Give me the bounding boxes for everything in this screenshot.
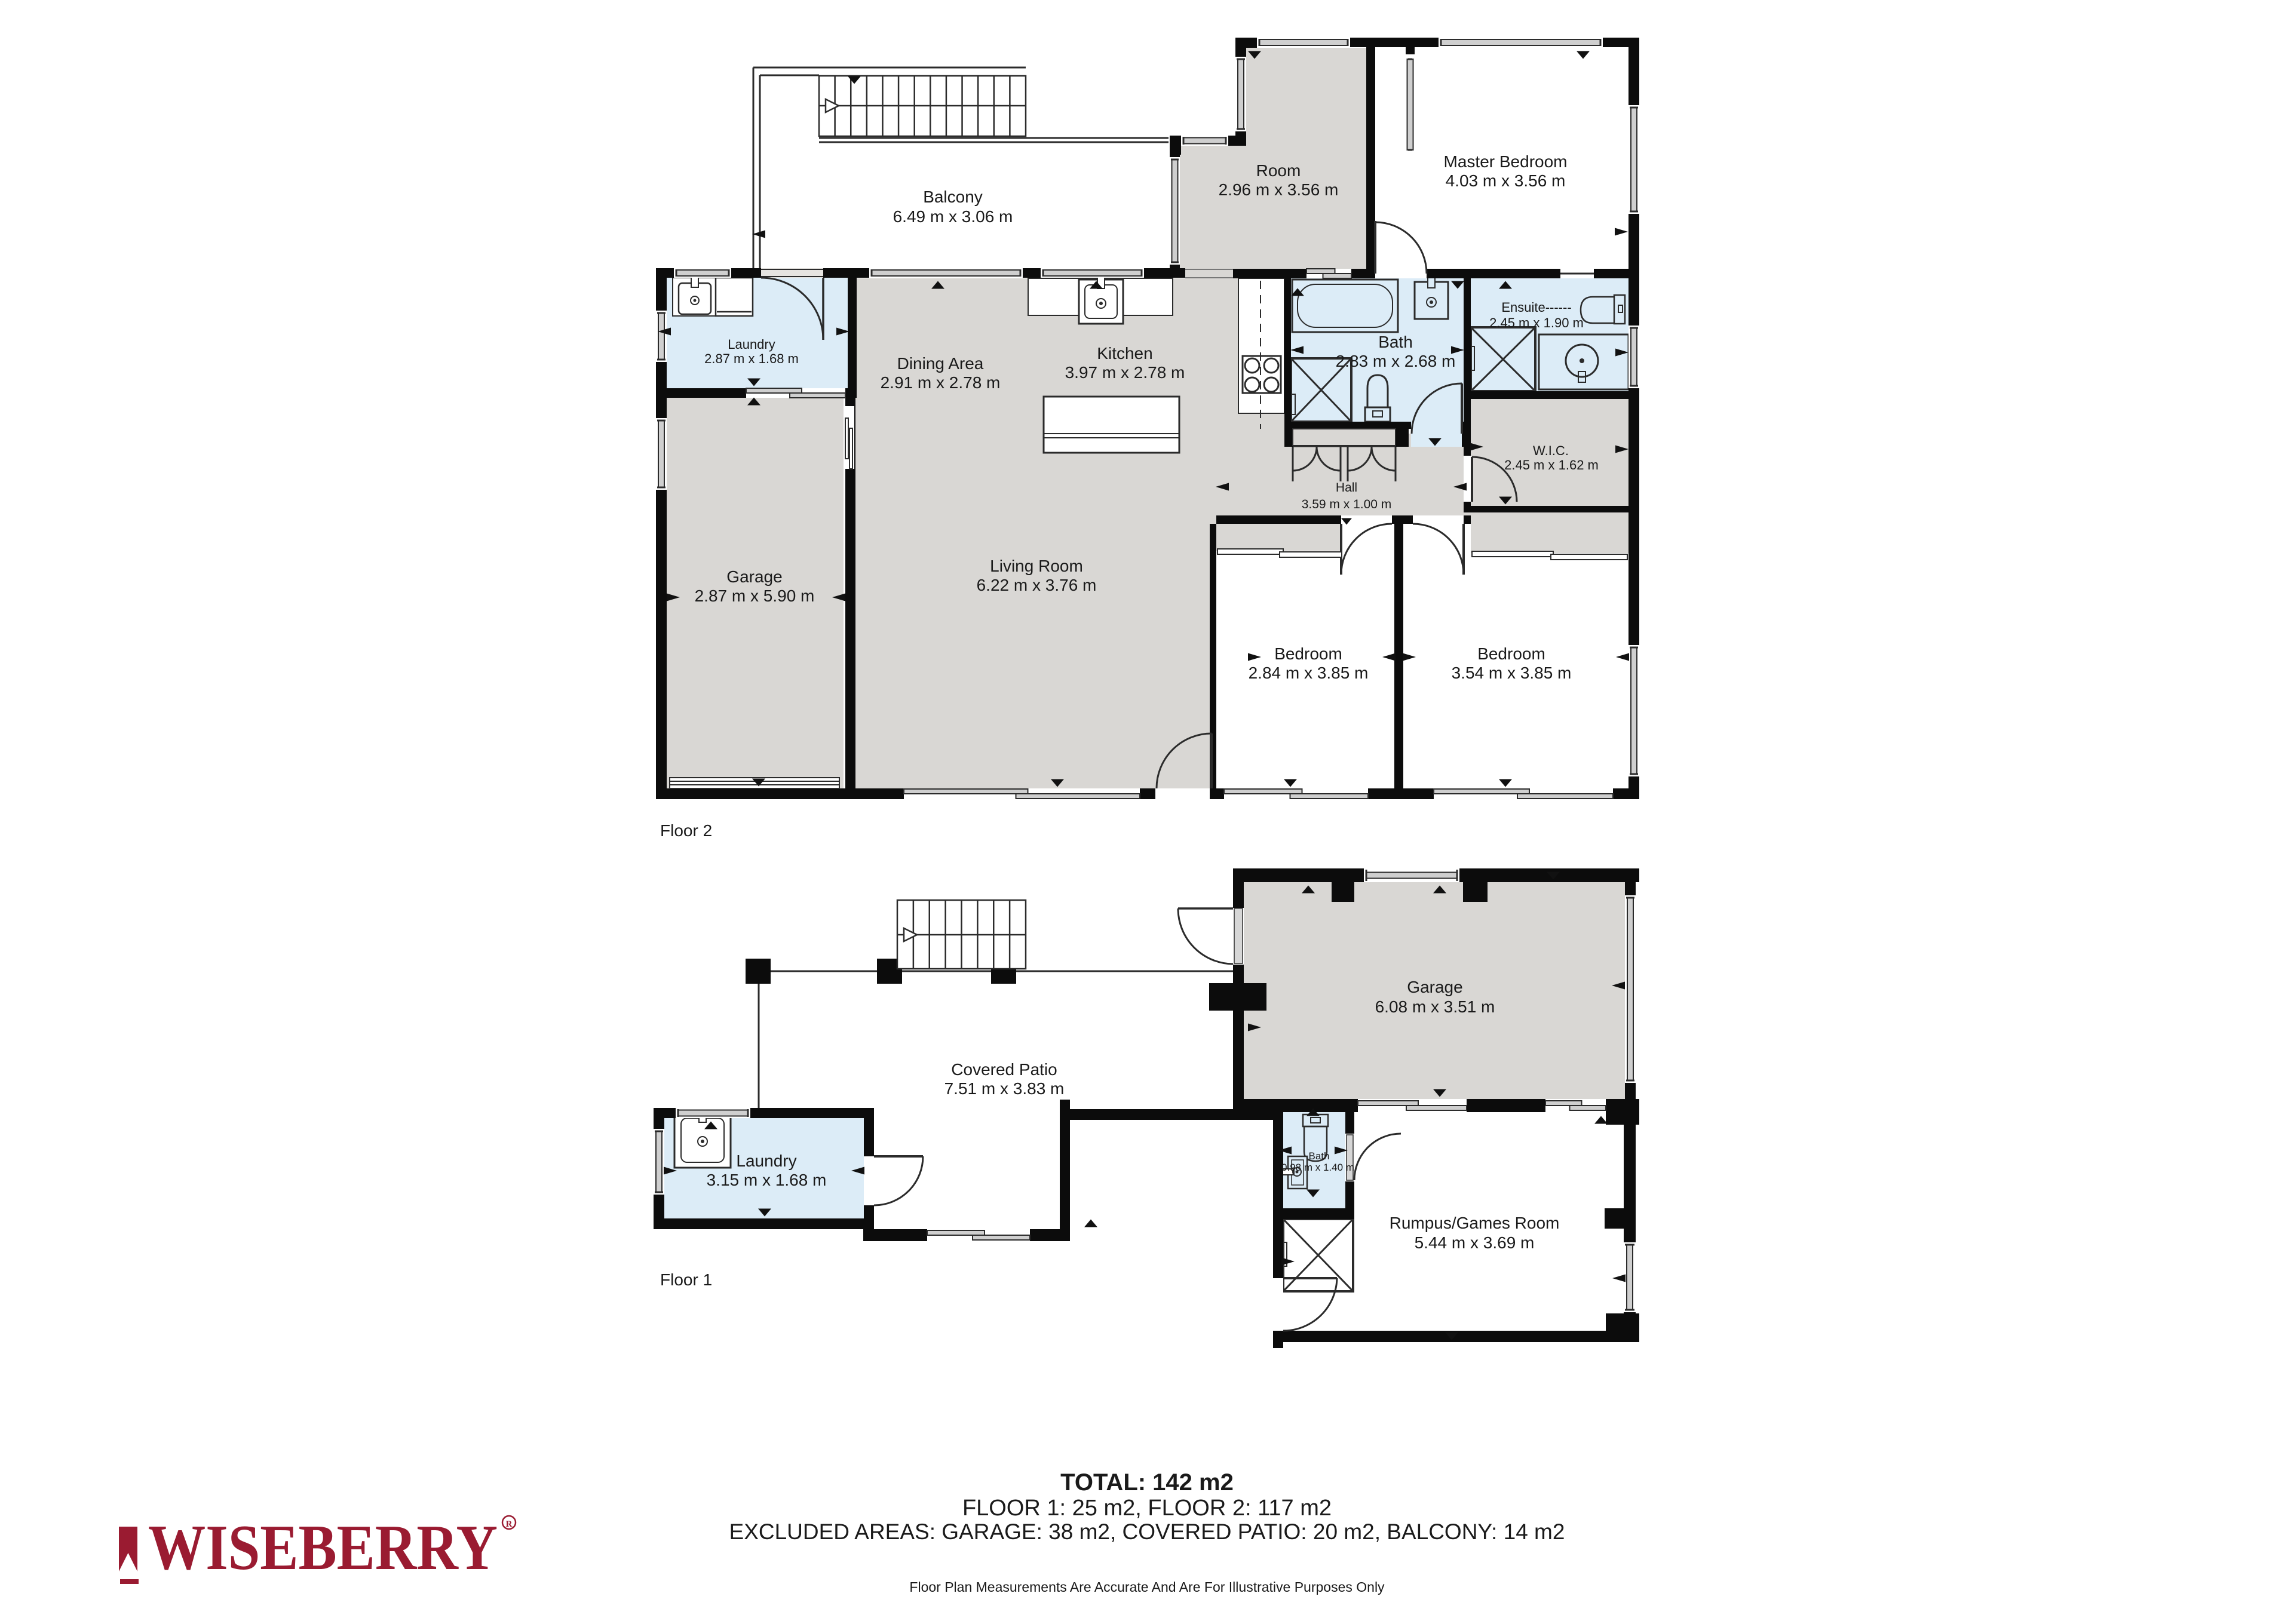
- svg-text:TOTAL: 142 m2: TOTAL: 142 m2: [1060, 1469, 1234, 1496]
- svg-text:Garage: Garage: [1407, 978, 1462, 996]
- svg-text:Laundry: Laundry: [736, 1152, 796, 1170]
- svg-text:Hall: Hall: [1336, 481, 1357, 495]
- svg-text:0.98 m x 1.40 m: 0.98 m x 1.40 m: [1281, 1162, 1354, 1173]
- svg-text:Bedroom: Bedroom: [1477, 644, 1545, 663]
- svg-text:Room: Room: [1256, 161, 1301, 180]
- svg-text:EXCLUDED AREAS: GARAGE: 38 m2,: EXCLUDED AREAS: GARAGE: 38 m2, COVERED P…: [729, 1519, 1565, 1544]
- svg-text:Rumpus/Games Room: Rumpus/Games Room: [1390, 1214, 1560, 1232]
- svg-text:2.45 m x 1.62 m: 2.45 m x 1.62 m: [1504, 458, 1599, 472]
- svg-text:2.83 m x 2.68 m: 2.83 m x 2.68 m: [1336, 352, 1456, 370]
- svg-text:4.03 m x 3.56 m: 4.03 m x 3.56 m: [1446, 171, 1566, 190]
- svg-text:Bath: Bath: [1378, 333, 1413, 351]
- svg-text:Bath: Bath: [1309, 1150, 1330, 1162]
- svg-text:3.97 m x 2.78 m: 3.97 m x 2.78 m: [1065, 363, 1185, 382]
- svg-text:2.87 m x 1.68 m: 2.87 m x 1.68 m: [704, 351, 799, 366]
- svg-text:Laundry: Laundry: [728, 337, 775, 352]
- svg-text:6.22 m x 3.76 m: 6.22 m x 3.76 m: [977, 576, 1097, 594]
- svg-text:Master Bedroom: Master Bedroom: [1444, 152, 1568, 171]
- svg-text:Bedroom: Bedroom: [1274, 644, 1342, 663]
- svg-text:2.96 m x 3.56 m: 2.96 m x 3.56 m: [1219, 180, 1339, 199]
- svg-text:2.45 m x 1.90 m: 2.45 m x 1.90 m: [1489, 315, 1584, 330]
- svg-text:6.49 m x 3.06 m: 6.49 m x 3.06 m: [893, 207, 1013, 226]
- svg-text:W.I.C.: W.I.C.: [1533, 443, 1569, 458]
- svg-text:7.51 m x 3.83 m: 7.51 m x 3.83 m: [944, 1079, 1065, 1098]
- svg-text:Kitchen: Kitchen: [1097, 344, 1152, 363]
- svg-text:Floor 2: Floor 2: [660, 821, 712, 840]
- svg-text:2.87 m x 5.90 m: 2.87 m x 5.90 m: [695, 587, 815, 605]
- svg-text:Dining Area: Dining Area: [897, 354, 984, 373]
- svg-text:Floor Plan Measurements Are Ac: Floor Plan Measurements Are Accurate And…: [909, 1579, 1385, 1595]
- svg-text:WISEBERRY: WISEBERRY: [148, 1512, 498, 1583]
- svg-text:3.54 m x 3.85 m: 3.54 m x 3.85 m: [1452, 664, 1572, 682]
- svg-text:Floor 1: Floor 1: [660, 1270, 712, 1289]
- svg-text:2.91 m x 2.78 m: 2.91 m x 2.78 m: [881, 373, 1001, 392]
- svg-text:FLOOR 1: 25 m2, FLOOR 2: 117 m: FLOOR 1: 25 m2, FLOOR 2: 117 m2: [962, 1496, 1332, 1521]
- svg-text:Garage: Garage: [726, 567, 782, 586]
- svg-text:3.59 m x 1.00 m: 3.59 m x 1.00 m: [1302, 498, 1392, 511]
- svg-text:6.08 m x 3.51 m: 6.08 m x 3.51 m: [1375, 997, 1495, 1016]
- svg-text:5.44 m x 3.69 m: 5.44 m x 3.69 m: [1415, 1233, 1535, 1252]
- svg-text:Covered Patio: Covered Patio: [951, 1060, 1057, 1079]
- svg-text:Living Room: Living Room: [990, 557, 1083, 575]
- svg-text:2.84 m x 3.85 m: 2.84 m x 3.85 m: [1249, 664, 1369, 682]
- svg-text:Ensuite------: Ensuite------: [1501, 300, 1571, 315]
- svg-text:Balcony: Balcony: [923, 188, 983, 206]
- svg-text:R: R: [506, 1519, 513, 1529]
- svg-text:3.15 m x 1.68 m: 3.15 m x 1.68 m: [707, 1171, 827, 1189]
